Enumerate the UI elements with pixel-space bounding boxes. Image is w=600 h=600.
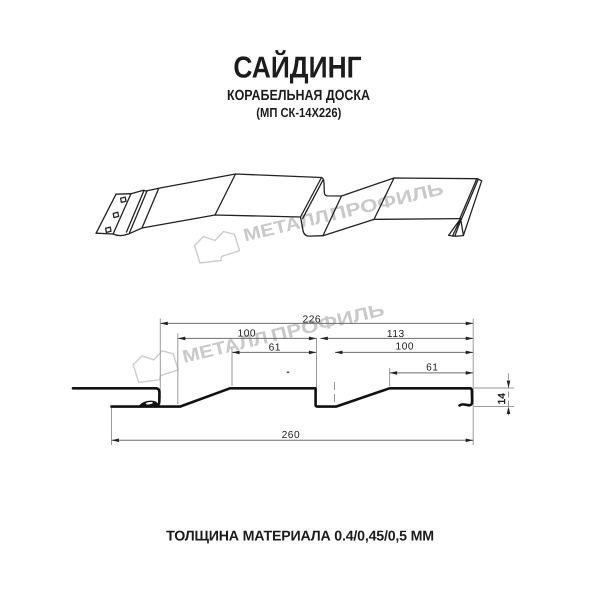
svg-text:61: 61 bbox=[269, 342, 281, 353]
svg-text:КОРАБЕЛЬНАЯ ДОСКА: КОРАБЕЛЬНАЯ ДОСКА bbox=[227, 88, 370, 104]
svg-text:14: 14 bbox=[497, 393, 508, 405]
svg-text:САЙДИНГ: САЙДИНГ bbox=[233, 50, 361, 85]
svg-text:113: 113 bbox=[387, 329, 405, 340]
svg-text:100: 100 bbox=[396, 342, 415, 353]
svg-text:ТОЛЩИНА МАТЕРИАЛА 0.4/0,45/0,5: ТОЛЩИНА МАТЕРИАЛА 0.4/0,45/0,5 ММ bbox=[166, 529, 434, 545]
svg-text:61: 61 bbox=[426, 363, 438, 374]
svg-text:(МП СК-14Х226): (МП СК-14Х226) bbox=[256, 105, 341, 120]
svg-text:226: 226 bbox=[303, 314, 322, 325]
svg-text:260: 260 bbox=[282, 430, 301, 441]
svg-text:100: 100 bbox=[238, 328, 257, 339]
